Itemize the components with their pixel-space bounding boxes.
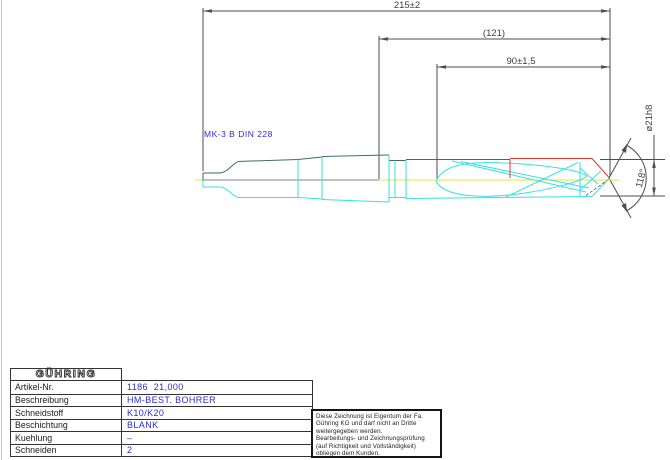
guehring-logo: GÜHRING xyxy=(36,369,97,380)
dimension-lines xyxy=(203,8,665,218)
drill-drawing-canvas: 215±2 (121) 90±1,5 ø21h8 118° MK-3 B DIN… xyxy=(0,0,670,365)
table-row: Kuehlung – xyxy=(11,431,312,444)
row-value: BLANK xyxy=(122,420,312,432)
drill-lower-outline xyxy=(203,155,610,202)
dimension-arrowheads xyxy=(203,9,656,212)
notice-line: Bearbeitungs- und Zeichnungsprüfung xyxy=(316,435,437,442)
notice-line: weitergegeben werden. xyxy=(316,428,437,435)
dim-overall-length: 215±2 xyxy=(394,0,420,11)
table-row: Schneidstoff K10/K20 xyxy=(11,406,312,419)
drill-upper-outline xyxy=(203,155,510,180)
flute-lines xyxy=(436,161,601,197)
table-row: Artikel-Nr. 1186 21,000 xyxy=(11,381,312,394)
row-label: Schneidstoff xyxy=(11,407,122,419)
notice-line: obliegen dem Kunden. xyxy=(316,450,437,457)
row-value: – xyxy=(122,432,312,444)
table-row: Beschreibung HM-BEST. BOHRER xyxy=(11,394,312,407)
row-label: Beschreibung xyxy=(11,395,122,407)
row-label: Kuehlung xyxy=(11,432,122,444)
dim-point-angle: 118° xyxy=(634,168,650,189)
dim-flute-length: 90±1,5 xyxy=(507,56,536,67)
row-value: K10/K20 xyxy=(122,407,312,419)
dim-intermediate-length: (121) xyxy=(483,28,505,39)
row-value: 2 xyxy=(122,445,312,457)
table-row: Beschichtung BLANK xyxy=(11,419,312,432)
taper-spec-label: MK-3 B DIN 228 xyxy=(204,129,273,139)
row-label: Artikel-Nr. xyxy=(11,381,122,394)
row-value: HM-BEST. BOHRER xyxy=(122,395,312,407)
legal-notice-box: Diese Zeichnung ist Eigentum der Fa. Güh… xyxy=(311,409,442,458)
row-value: 1186 21,000 xyxy=(122,381,312,394)
technical-drawing-page: { "drawing": { "dimensions": { "overall_… xyxy=(0,0,670,460)
notice-line: (auf Richtigkeit und Vollständigkeit) xyxy=(316,443,437,450)
notice-line: Gühring KG und darf nicht an Dritte xyxy=(316,420,437,427)
page-left-border xyxy=(1,0,2,460)
row-label: Schneiden xyxy=(11,445,122,457)
row-label: Beschichtung xyxy=(11,420,122,432)
notice-line: Diese Zeichnung ist Eigentum der Fa. xyxy=(316,413,437,420)
titleblock-table: Artikel-Nr. 1186 21,000 Beschreibung HM-… xyxy=(10,380,313,457)
table-row: Schneiden 2 xyxy=(11,444,312,457)
dim-diameter: ø21h8 xyxy=(644,105,655,132)
